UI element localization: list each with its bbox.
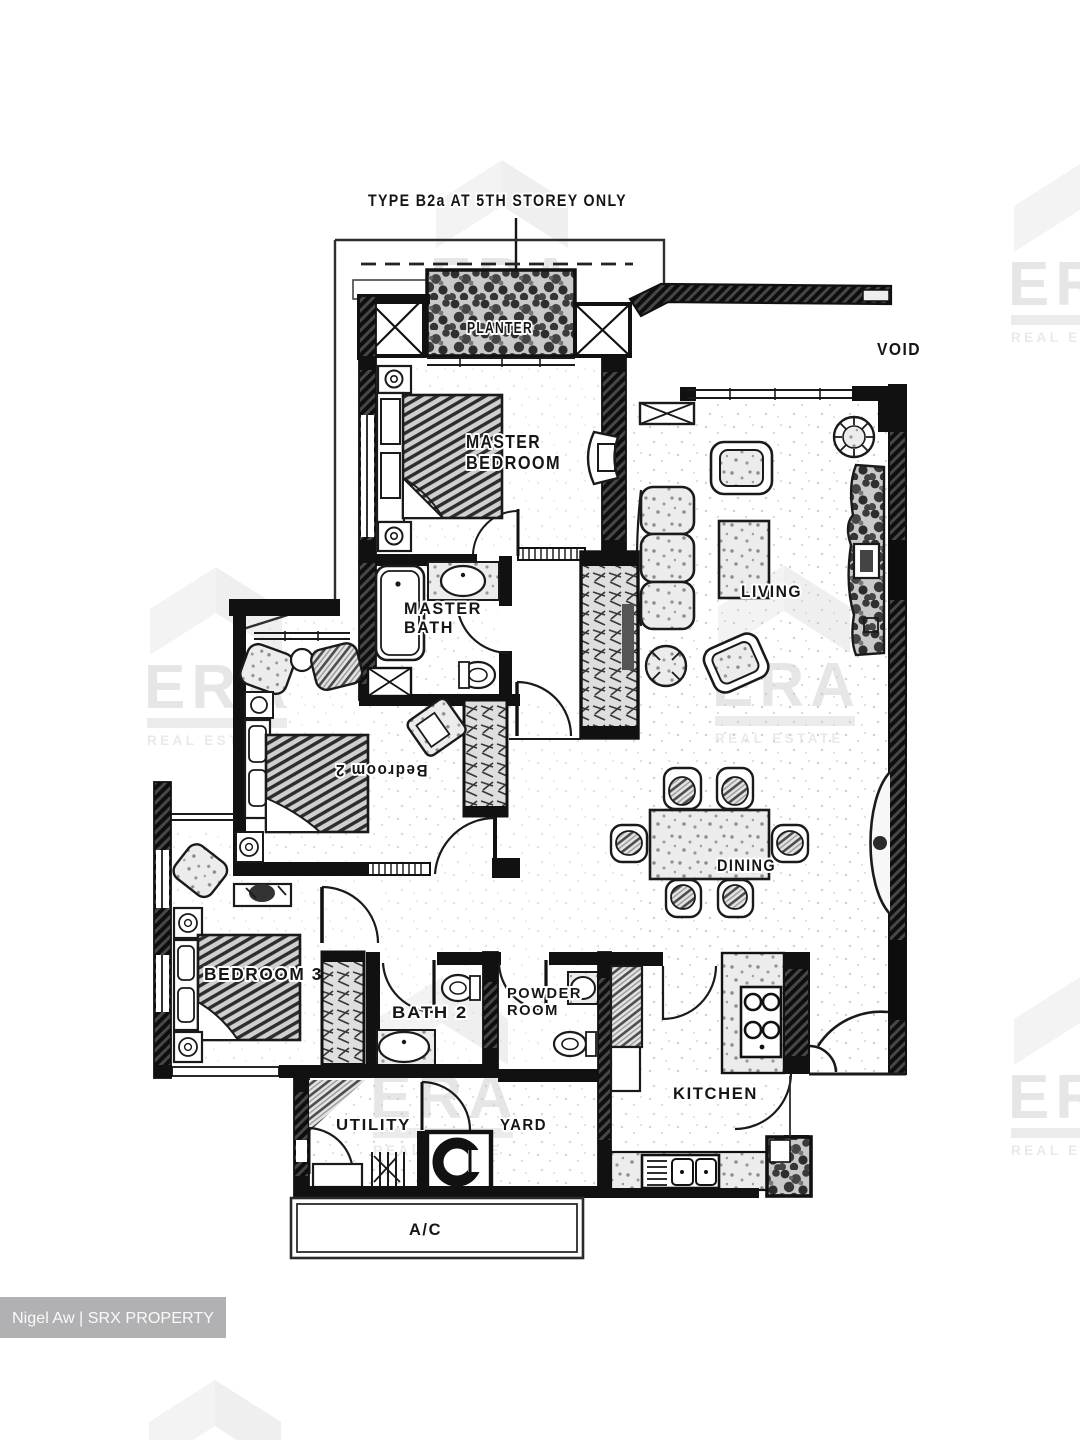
svg-text:A/C: A/C xyxy=(409,1221,442,1239)
svg-text:TYPE B2a AT 5TH STOREY ONLY: TYPE B2a AT 5TH STOREY ONLY xyxy=(368,191,627,210)
svg-text:DINING: DINING xyxy=(717,856,776,875)
svg-text:BATH 2: BATH 2 xyxy=(392,1004,468,1022)
svg-text:BEDROOM: BEDROOM xyxy=(466,452,561,473)
svg-text:BATH: BATH xyxy=(404,619,454,637)
svg-text:UTILITY: UTILITY xyxy=(336,1117,411,1134)
svg-text:MASTER: MASTER xyxy=(404,600,482,618)
svg-text:KITCHEN: KITCHEN xyxy=(673,1085,758,1103)
svg-text:Bedroom 2: Bedroom 2 xyxy=(335,761,428,779)
svg-text:VOID: VOID xyxy=(877,339,921,359)
svg-text:YARD: YARD xyxy=(500,1117,547,1134)
svg-text:Nigel Aw | SRX PROPERTY: Nigel Aw | SRX PROPERTY xyxy=(12,1310,214,1327)
svg-text:PLANTER: PLANTER xyxy=(467,320,533,337)
svg-text:ROOM: ROOM xyxy=(507,1002,559,1019)
svg-text:LIVING: LIVING xyxy=(741,582,802,601)
svg-text:MASTER: MASTER xyxy=(466,431,541,452)
svg-text:POWDER: POWDER xyxy=(507,985,582,1002)
svg-text:BEDROOM 3: BEDROOM 3 xyxy=(204,964,323,984)
